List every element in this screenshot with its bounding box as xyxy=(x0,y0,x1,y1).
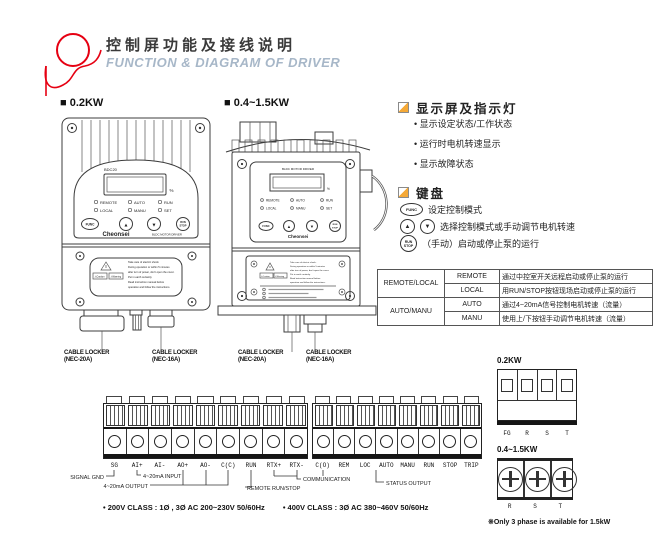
terminal-screw xyxy=(461,429,481,454)
power-block-large-label: 0.4~1.5KW xyxy=(497,445,537,454)
down-key-icon: ▼ xyxy=(420,219,435,234)
svg-text:▲: ▲ xyxy=(287,224,291,229)
svg-text:operation and follow the instr: operation and follow the instructions. xyxy=(128,285,170,289)
power-large-terminal-labels: RST xyxy=(497,503,573,510)
warning-box: ⚠Warning xyxy=(111,276,122,279)
screw-icon xyxy=(525,467,550,492)
brand-sub-text: BLDC MOTOR DRIVER xyxy=(152,233,182,237)
lcd-display xyxy=(270,174,324,191)
table-row: REMOTE/LOCAL REMOTE 通过中控室开关远程启动或停止泵的运行 xyxy=(378,270,653,284)
wire-stub xyxy=(262,396,285,403)
svg-text:after turn of power, don't ope: after turn of power, don't open the cove… xyxy=(128,270,175,274)
svg-text:RUN: RUN xyxy=(180,220,186,224)
terminal-strip-right xyxy=(312,396,482,459)
model-text: BDC20 xyxy=(104,167,118,172)
keypad-section-title: 键盘 xyxy=(416,183,445,202)
terminal-clamp xyxy=(173,405,193,426)
keypad-item: RUNSTOP （手动）启动或停止泵的运行 xyxy=(400,235,575,252)
terminal-clamp xyxy=(218,405,238,426)
svg-text:RUN: RUN xyxy=(326,199,334,203)
status-output-label: STATUS OUTPUT xyxy=(386,481,432,487)
section-icon xyxy=(398,187,409,198)
terminal-screw xyxy=(419,429,440,454)
wire-stub xyxy=(171,396,194,403)
terminal-clamp xyxy=(286,405,306,426)
brand-text: Cheonsei xyxy=(288,234,308,239)
manual-page: 控制屏功能及接线说明 FUNCTION & DIAGRAM OF DRIVER … xyxy=(0,0,654,540)
wire-stub xyxy=(355,396,376,403)
wire-stub xyxy=(103,396,126,403)
device-small-label: ■ 0.2KW xyxy=(60,97,103,109)
terminal-clamp xyxy=(441,405,459,426)
class-note-200v: • 200V CLASS : 1Ø , 3Ø AC 200~230V 50/60… xyxy=(103,503,265,512)
brand-logo-icon xyxy=(42,26,108,100)
percent-label: % xyxy=(170,188,174,193)
terminal-label: R xyxy=(497,503,522,510)
terminal-label: T xyxy=(557,430,577,437)
svg-text:MANU: MANU xyxy=(134,208,146,213)
wiring-annotations: SIGNAL GND 4~20mA INPUT 4~20mA OUTPUT RE… xyxy=(30,460,510,502)
wire-stub xyxy=(285,396,308,403)
terminal-clamp xyxy=(196,405,216,426)
wire-stub xyxy=(333,396,354,403)
wire-stub xyxy=(440,396,461,403)
svg-text:REMOTE: REMOTE xyxy=(266,199,280,203)
wire-stub xyxy=(240,396,263,403)
terminal-clamp xyxy=(420,405,438,426)
svg-text:operation and follow the instr: operation and follow the instructions. xyxy=(290,281,326,284)
terminal-screw xyxy=(195,429,218,454)
mounting-flange xyxy=(218,306,376,315)
percent-label: % xyxy=(327,187,330,191)
power-terminal xyxy=(498,461,525,497)
svg-text:Read instruction manual before: Read instruction manual before xyxy=(128,280,165,284)
warning-triangle-icon xyxy=(266,263,274,270)
run-stop-key-icon: RUNSTOP xyxy=(400,235,417,252)
warning-box: ⚠Warning xyxy=(275,275,284,278)
svg-text:▲: ▲ xyxy=(124,222,129,228)
svg-text:STOP: STOP xyxy=(332,228,338,230)
terminal-strip-left xyxy=(103,396,308,459)
table-row: AUTO/MANU AUTO 通过4~20mA信号控制电机转速（流量） xyxy=(378,298,653,312)
cable-locker-label: CABLE LOCKER(NEC-20A) xyxy=(64,350,132,364)
terminal-clamp xyxy=(128,405,148,426)
device-small-figure: BDC20 % REMOTE AUTO RUN LOCAL MANU SET F… xyxy=(56,112,216,374)
svg-text:STOP: STOP xyxy=(179,224,186,228)
terminal-clamp xyxy=(315,405,333,426)
warning-text: Take care of electric shock. During oper… xyxy=(290,261,329,284)
svg-text:Read instruction manual before: Read instruction manual before xyxy=(290,277,321,280)
output-label: 4~20mA OUTPUT xyxy=(104,484,149,490)
terminal-screw xyxy=(313,429,334,454)
cable-locker-label: CABLE LOCKER(NEC-16A) xyxy=(306,350,374,364)
wire-stub xyxy=(461,396,482,403)
svg-text:RUN: RUN xyxy=(164,200,173,205)
wire-stub xyxy=(149,396,172,403)
func-key-icon: FUNC xyxy=(400,203,423,216)
terminal-clamp xyxy=(357,405,375,426)
wire-stub xyxy=(397,396,418,403)
keypad-items: FUNC 设定控制模式 ▲ ▼ 选择控制模式或手动调节电机转速 RUNSTOP … xyxy=(400,201,575,252)
svg-text:During operation or within 5 m: During operation or within 5 minutes xyxy=(290,265,326,268)
device-large-label: ■ 0.4~1.5KW xyxy=(224,97,289,109)
warning-triangle-icon xyxy=(101,262,111,270)
screw-icon xyxy=(498,467,523,492)
svg-text:During operation or within 5 m: During operation or within 5 minutes xyxy=(128,265,170,269)
terminal-screw xyxy=(149,429,172,454)
svg-text:RUN: RUN xyxy=(333,224,338,226)
svg-text:FUNC: FUNC xyxy=(86,223,96,227)
terminal-screw xyxy=(172,429,195,454)
terminal-clamp xyxy=(263,405,283,426)
svg-text:Take care of electric shock.: Take care of electric shock. xyxy=(290,261,317,264)
wire-stub xyxy=(217,396,240,403)
bullet-item: 显示故障状态 xyxy=(414,154,512,174)
svg-text:LOCAL: LOCAL xyxy=(266,207,277,211)
power-block-large xyxy=(497,458,573,500)
svg-text:after turn of power, don't ope: after turn of power, don't open the cove… xyxy=(290,269,329,272)
run-stop-button xyxy=(330,221,341,232)
terminal-label: T xyxy=(548,503,573,510)
svg-text:LOCAL: LOCAL xyxy=(100,208,114,213)
side-cable-gland xyxy=(360,170,372,192)
terminal-screw xyxy=(334,429,355,454)
power-terminal xyxy=(557,370,576,400)
terminal-screw xyxy=(104,429,127,454)
terminal-screw xyxy=(355,429,376,454)
terminal-clamp xyxy=(241,405,261,426)
warning-text: Take care of electric shock. During oper… xyxy=(128,260,175,289)
device-large-figure: BLDC MOTOR DRIVER % REMOTE AUTO RUN LOCA… xyxy=(216,112,396,374)
power-block-small xyxy=(497,369,577,425)
svg-text:MANU: MANU xyxy=(296,207,306,211)
power-terminal xyxy=(518,370,538,400)
section-icon xyxy=(398,102,409,113)
bullet-item: 运行时电机转速显示 xyxy=(414,134,512,154)
terminal-screw xyxy=(127,429,150,454)
svg-text:SET: SET xyxy=(326,207,332,211)
brand-text: Cheonsei xyxy=(102,232,129,238)
terminal-clamp xyxy=(378,405,396,426)
screw-icon xyxy=(552,467,577,492)
keypad-item: FUNC 设定控制模式 xyxy=(400,201,575,218)
cable-gland xyxy=(284,315,326,352)
svg-text:REMOTE: REMOTE xyxy=(100,200,117,205)
notice-bullets xyxy=(263,288,324,299)
keypad-section-header: 键盘 xyxy=(398,183,445,202)
terminal-screw xyxy=(263,429,286,454)
display-section-bullets: 显示设定状态/工作状态 运行时电机转速显示 显示故障状态 xyxy=(414,114,512,174)
terminal-label: R xyxy=(517,430,537,437)
terminal-screw xyxy=(398,429,419,454)
cable-gland xyxy=(80,310,174,352)
cable-locker-label: CABLE LOCKER(NEC-20A) xyxy=(238,350,306,364)
wire-stub xyxy=(418,396,439,403)
cable-locker-label: CABLE LOCKER(NEC-16A) xyxy=(152,350,220,364)
wire-stub xyxy=(194,396,217,403)
terminal-screw xyxy=(217,429,240,454)
svg-text:FUNC: FUNC xyxy=(262,224,269,228)
power-terminal xyxy=(552,461,577,497)
page-subtitle: FUNCTION & DIAGRAM OF DRIVER xyxy=(106,55,340,70)
wire-stub xyxy=(312,396,333,403)
terminal-label: FG xyxy=(497,430,517,437)
power-cable xyxy=(372,176,387,230)
up-key-icon: ▲ xyxy=(400,219,415,234)
svg-text:Put in earth certainly.: Put in earth certainly. xyxy=(128,275,152,279)
svg-text:SET: SET xyxy=(164,208,172,213)
three-phase-note: ※Only 3 phase is available for 1.5kW xyxy=(488,518,610,526)
terminal-clamp xyxy=(399,405,417,426)
terminal-screw xyxy=(440,429,461,454)
svg-text:AUTO: AUTO xyxy=(296,199,305,203)
voltage-class-notes: • 200V CLASS : 1Ø , 3Ø AC 200~230V 50/60… xyxy=(103,503,428,512)
terminal-clamp xyxy=(462,405,480,426)
input-label: 4~20mA INPUT xyxy=(143,474,182,480)
communication-label: COMMUNICATION xyxy=(303,477,350,483)
keypad-item: ▲ ▼ 选择控制模式或手动调节电机转速 xyxy=(400,218,575,235)
terminal-clamp xyxy=(106,405,126,426)
caution-box: ⚠Caution xyxy=(95,276,106,279)
class-note-400v: • 400V CLASS : 3Ø AC 380~460V 50/60Hz xyxy=(283,503,429,512)
terminal-label: S xyxy=(537,430,557,437)
terminal-label: S xyxy=(522,503,547,510)
wire-stub xyxy=(376,396,397,403)
terminal-screw xyxy=(376,429,397,454)
power-block-small-label: 0.2KW xyxy=(497,356,521,365)
led-indicators: REMOTE AUTO RUN LOCAL MANU SET xyxy=(261,199,334,211)
svg-text:▼: ▼ xyxy=(310,224,314,229)
remote-runstop-label: REMOTE RUN/STOP xyxy=(247,486,301,492)
terminal-clamp xyxy=(336,405,354,426)
svg-text:▼: ▼ xyxy=(152,222,157,228)
bullet-item: 显示设定状态/工作状态 xyxy=(414,114,512,134)
panel-title-text: BLDC MOTOR DRIVER xyxy=(282,167,315,171)
svg-text:Put in earth certainly.: Put in earth certainly. xyxy=(290,273,311,276)
power-terminal xyxy=(525,461,552,497)
page-title: 控制屏功能及接线说明 xyxy=(106,34,296,55)
terminal-clamp xyxy=(151,405,171,426)
power-terminal xyxy=(538,370,558,400)
wire-stub xyxy=(126,396,149,403)
power-terminal xyxy=(498,370,518,400)
terminal-screw xyxy=(240,429,263,454)
svg-text:Take care of electric shock.: Take care of electric shock. xyxy=(128,260,160,264)
terminal-screw xyxy=(285,429,307,454)
svg-text:AUTO: AUTO xyxy=(134,200,145,205)
power-small-terminal-labels: FGRST xyxy=(497,430,577,437)
signal-gnd-label: SIGNAL GND xyxy=(70,475,104,481)
caution-box: ⚠Caution xyxy=(261,275,270,278)
mode-table: REMOTE/LOCAL REMOTE 通过中控室开关远程启动或停止泵的运行 L… xyxy=(377,269,653,326)
